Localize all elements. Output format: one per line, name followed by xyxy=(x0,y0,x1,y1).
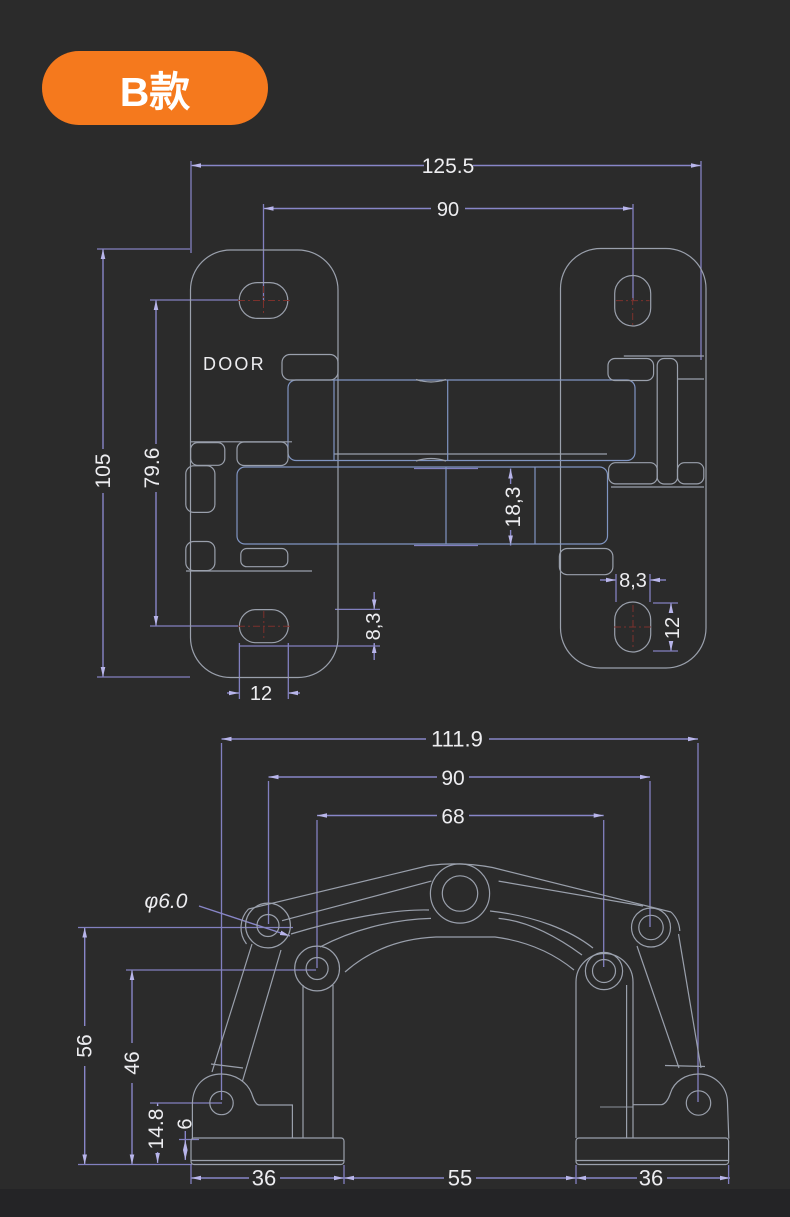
svg-text:14.8: 14.8 xyxy=(145,1109,168,1150)
svg-text:18,3: 18,3 xyxy=(502,487,525,528)
svg-text:8,3: 8,3 xyxy=(363,613,385,641)
svg-text:12: 12 xyxy=(662,617,684,639)
svg-text:46: 46 xyxy=(121,1051,144,1074)
svg-text:6: 6 xyxy=(175,1118,197,1129)
svg-text:56: 56 xyxy=(74,1034,97,1057)
svg-text:φ6.0: φ6.0 xyxy=(145,890,188,913)
svg-text:111.9: 111.9 xyxy=(431,727,483,752)
svg-text:68: 68 xyxy=(441,806,464,829)
svg-text:36: 36 xyxy=(639,1166,663,1191)
svg-text:90: 90 xyxy=(441,767,464,790)
svg-text:8,3: 8,3 xyxy=(619,570,647,592)
svg-text:90: 90 xyxy=(437,199,459,221)
svg-text:DOOR: DOOR xyxy=(203,354,266,374)
svg-text:55: 55 xyxy=(448,1166,472,1191)
svg-text:125.5: 125.5 xyxy=(422,155,475,178)
svg-text:36: 36 xyxy=(252,1166,276,1191)
svg-text:12: 12 xyxy=(250,683,272,705)
svg-text:79.6: 79.6 xyxy=(141,448,164,489)
svg-text:105: 105 xyxy=(92,453,115,488)
